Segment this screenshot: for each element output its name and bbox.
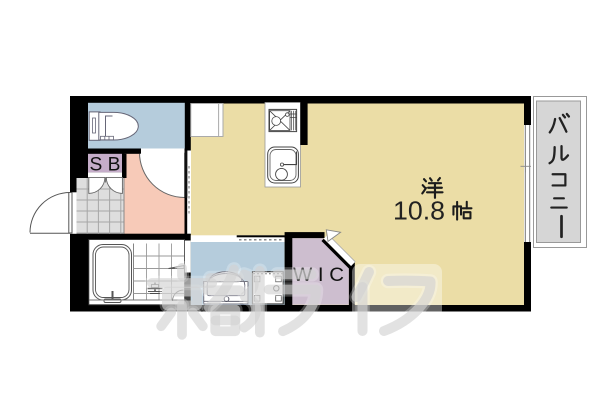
svg-text:10.8: 10.8 — [393, 196, 445, 226]
svg-text:S B: S B — [90, 154, 121, 175]
